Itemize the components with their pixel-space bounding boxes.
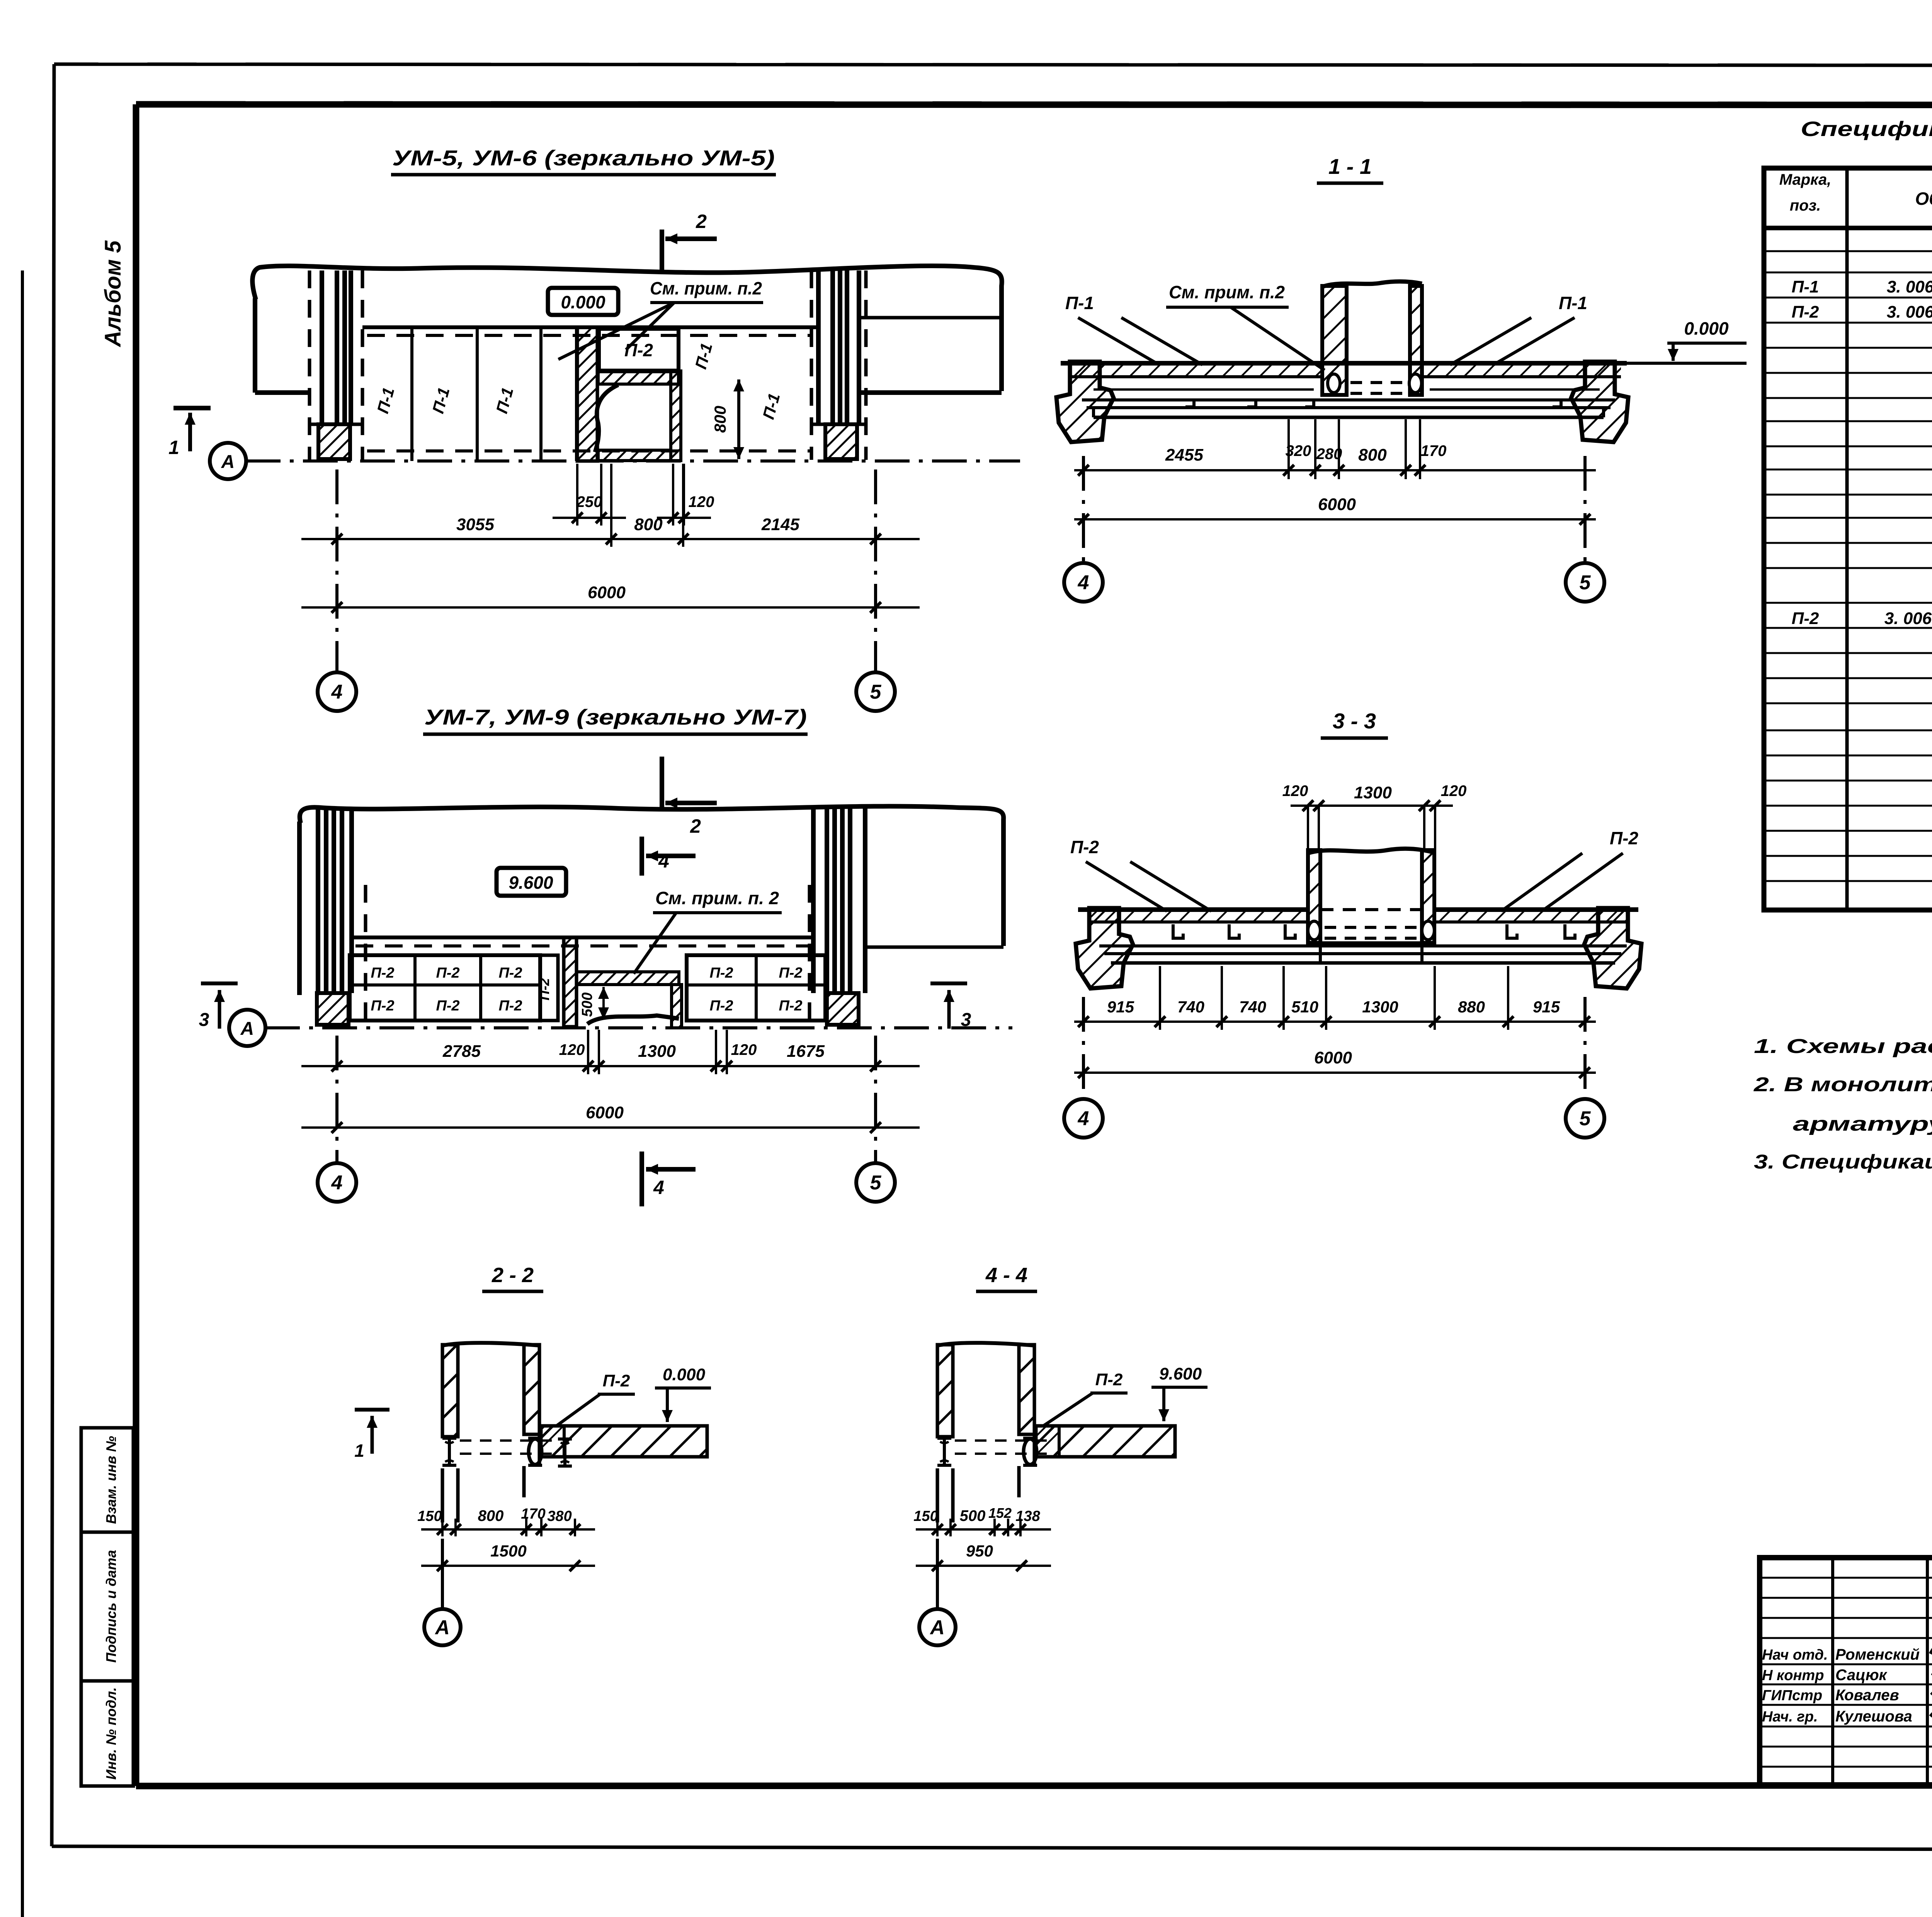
svg-text:поз.: поз. [1790,197,1821,214]
svg-text:800: 800 [478,1507,504,1524]
svg-text:380: 380 [547,1508,571,1524]
svg-text:6000: 6000 [586,1103,624,1122]
svg-text:П-2: П-2 [624,340,653,360]
svg-text:1675: 1675 [787,1042,825,1061]
svg-text:4: 4 [331,681,343,703]
svg-text:3 - 3: 3 - 3 [1333,709,1376,733]
svg-text:138: 138 [1015,1508,1040,1524]
svg-text:Взам. инв №: Взам. инв № [103,1436,119,1524]
svg-text:150: 150 [417,1508,442,1524]
svg-text:2 - 2: 2 - 2 [492,1264,534,1287]
svg-text:А: А [434,1616,450,1639]
svg-text:800: 800 [711,406,729,433]
svg-text:Марка,: Марка, [1779,171,1832,188]
svg-text:950: 950 [966,1542,993,1560]
svg-text:6000: 6000 [588,583,626,602]
svg-text:4: 4 [331,1172,343,1194]
svg-text:4 - 4: 4 - 4 [985,1264,1027,1287]
svg-text:П-2: П-2 [709,965,733,981]
svg-text:120: 120 [1441,782,1467,799]
svg-text:Нач. гр.: Нач. гр. [1762,1709,1818,1725]
svg-text:2145: 2145 [761,515,799,534]
svg-text:880: 880 [1458,998,1485,1016]
svg-text:740: 740 [1177,998,1204,1016]
svg-text:320: 320 [1286,442,1311,459]
svg-text:3. Спецификация элементов: 3. Спецификация элементов дана на 1 моно… [1754,1151,1932,1173]
svg-text:П-2: П-2 [1070,837,1099,857]
svg-text:170: 170 [521,1506,545,1522]
svg-text:6000: 6000 [1314,1048,1352,1067]
svg-text:П-2: П-2 [371,998,394,1014]
svg-text:УМ-5, УМ-6 (зеркально УМ-5): УМ-5, УМ-6 (зеркально УМ-5) [392,146,775,170]
svg-text:4: 4 [658,850,669,872]
svg-text:арматуру ф 6 А - I с шаго: арматуру ф 6 А - I с шагом 150 мм. [1793,1113,1932,1135]
svg-text:Сацюк: Сацюк [1835,1667,1888,1684]
svg-text:П-1: П-1 [1065,293,1094,313]
svg-text:П-1: П-1 [1559,293,1587,313]
svg-text:А: А [929,1616,945,1639]
svg-text:800: 800 [1358,446,1387,464]
svg-text:2785: 2785 [442,1042,481,1061]
svg-text:5: 5 [1580,1107,1591,1130]
svg-text:500: 500 [960,1507,986,1524]
svg-text:Кулешова: Кулешова [1835,1708,1912,1725]
svg-text:2. В монолитные участки д: 2. В монолитные участки до бетонирования… [1753,1073,1932,1096]
svg-text:915: 915 [1533,998,1560,1016]
svg-text:6000: 6000 [1318,495,1356,514]
svg-text:Нач отд.: Нач отд. [1762,1647,1828,1663]
svg-text:4: 4 [1078,1107,1089,1130]
svg-text:250: 250 [576,493,602,510]
svg-text:120: 120 [689,493,714,510]
svg-text:120: 120 [1282,782,1308,799]
svg-text:1: 1 [354,1441,364,1461]
svg-text:П-2: П-2 [536,978,552,1000]
svg-text:1. Схемы расположения сталь: 1. Схемы расположения стальных балок см.… [1754,1035,1932,1058]
svg-text:0.000: 0.000 [561,292,605,312]
svg-text:9.600: 9.600 [1159,1364,1202,1383]
svg-text:2: 2 [690,815,701,837]
svg-text:П-2: П-2 [498,998,522,1014]
svg-text:0.000: 0.000 [1684,318,1729,338]
svg-text:3. 006.1 - 2. 87 вып. 2: 3. 006.1 - 2. 87 вып. 2 [1887,277,1932,296]
svg-text:5: 5 [870,681,882,703]
svg-text:П-2: П-2 [1792,303,1819,321]
svg-text:4: 4 [1078,572,1089,594]
svg-text:П-1: П-1 [1792,277,1819,296]
svg-text:1300: 1300 [1354,783,1392,802]
svg-text:Подпись и дата: Подпись и дата [103,1550,119,1663]
svg-text:9.600: 9.600 [509,873,553,893]
svg-text:А: А [221,452,235,472]
svg-text:П-2: П-2 [1792,609,1819,628]
svg-text:1: 1 [168,437,179,458]
svg-text:П-2: П-2 [436,998,459,1014]
svg-text:Спецификация элементов на м: Спецификация элементов на монолитные уча… [1801,117,1932,141]
svg-text:П-2: П-2 [1610,828,1638,848]
svg-text:3. 006. 1 - 2. 87 вып. 2: 3. 006. 1 - 2. 87 вып. 2 [1884,609,1932,628]
svg-text:5: 5 [870,1172,882,1194]
svg-text:П-2: П-2 [779,965,802,981]
svg-text:170: 170 [1421,442,1447,459]
svg-text:740: 740 [1239,998,1266,1016]
svg-text:2: 2 [696,211,707,232]
svg-text:3: 3 [199,1010,209,1030]
svg-text:152: 152 [988,1505,1012,1521]
svg-text:Ковалев: Ковалев [1835,1687,1899,1704]
svg-text:4: 4 [653,1177,664,1198]
svg-text:5: 5 [1580,572,1591,594]
svg-text:См. прим. п. 2: См. прим. п. 2 [655,888,779,908]
svg-text:А: А [240,1019,254,1039]
svg-text:3055: 3055 [456,515,494,534]
svg-text:0.000: 0.000 [663,1365,706,1384]
svg-text:915: 915 [1107,998,1134,1016]
svg-text:1300: 1300 [1362,998,1398,1016]
svg-text:510: 510 [1291,998,1318,1016]
svg-text:500: 500 [579,992,595,1017]
svg-text:П-2: П-2 [779,998,802,1014]
svg-text:П-2: П-2 [1095,1370,1123,1389]
svg-text:1500: 1500 [490,1542,526,1560]
svg-text:П-2: П-2 [603,1371,630,1390]
svg-text:2455: 2455 [1165,446,1203,464]
svg-text:П-2: П-2 [436,965,459,981]
svg-text:1300: 1300 [638,1042,676,1061]
svg-text:1 - 1: 1 - 1 [1328,154,1372,179]
svg-text:280: 280 [1316,446,1342,463]
svg-text:Н контр: Н контр [1762,1667,1824,1684]
svg-text:150: 150 [913,1508,938,1524]
svg-text:П-2: П-2 [709,998,733,1014]
svg-text:120: 120 [559,1041,585,1058]
svg-text:УМ-7, УМ-9 (зеркально УМ-7): УМ-7, УМ-9 (зеркально УМ-7) [424,705,807,729]
svg-text:3. 006.1 - 2. 87 вып. 2: 3. 006.1 - 2. 87 вып. 2 [1887,303,1932,321]
svg-text:ГИПстр: ГИПстр [1762,1687,1822,1704]
svg-text:П-2: П-2 [371,965,394,981]
svg-text:Альбом 5: Альбом 5 [100,240,126,348]
svg-text:Обозначение: Обозначение [1915,189,1932,209]
svg-text:См. прим. п.2: См. прим. п.2 [650,278,762,298]
svg-text:Инв. № подл.: Инв. № подл. [103,1687,119,1779]
svg-text:Роменский: Роменский [1835,1646,1920,1663]
svg-text:См. прим. п.2: См. прим. п.2 [1169,282,1285,302]
svg-text:П-2: П-2 [498,965,522,981]
svg-text:120: 120 [731,1041,757,1058]
